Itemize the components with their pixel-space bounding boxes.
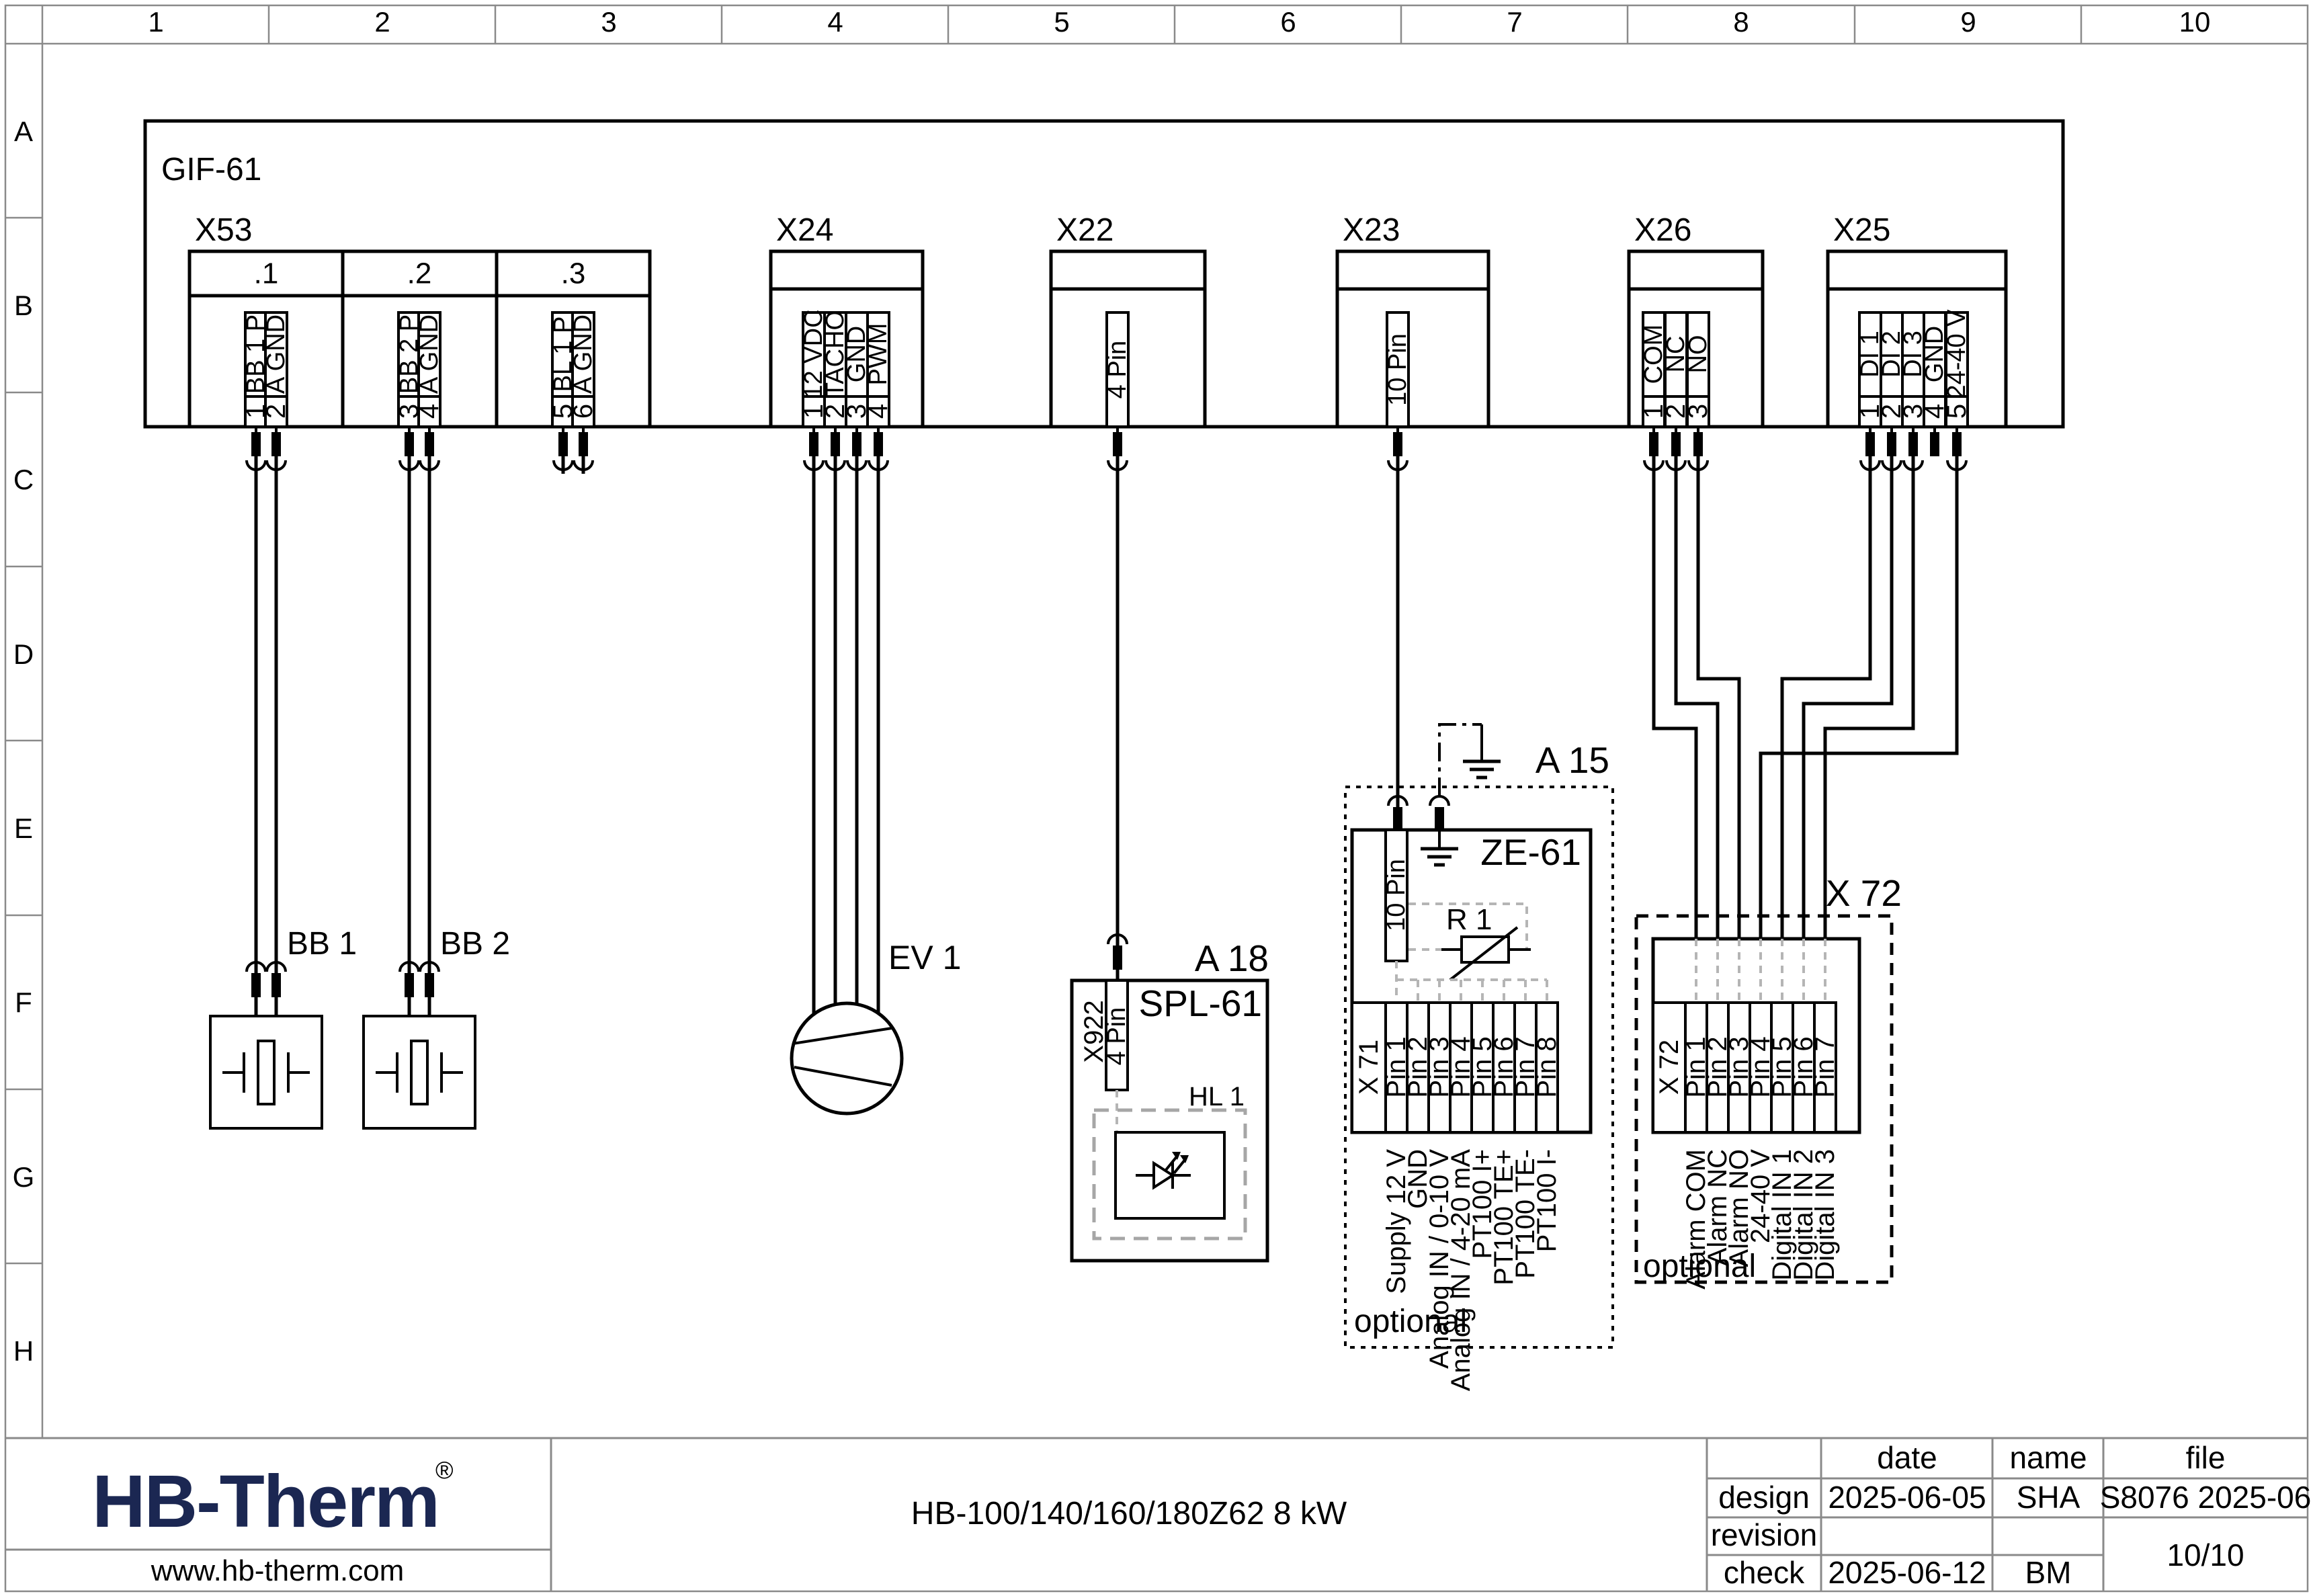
slot-label: 4 Pin [1103,1007,1131,1066]
connector-label: X26 [1634,212,1691,248]
pin-number: 4 [415,404,444,419]
col-header-date: date [1877,1440,1937,1475]
device-label: BB 2 [440,926,510,962]
brand-logo: HB-Therm ® [92,1456,453,1543]
strip-label: X 71 [1354,1040,1384,1095]
slot-label: 10 Pin [1384,333,1412,406]
grid-row-label: G [13,1161,35,1193]
grid-col-label: 10 [2179,6,2211,38]
col-header-name: name [2009,1440,2087,1475]
slot-label: 4 Pin [1103,341,1132,399]
fan-icon [792,1003,902,1114]
device-label: EV 1 [888,939,961,976]
grid-col-label: 8 [1733,6,1749,38]
design-date: 2025-06-05 [1828,1480,1986,1515]
grid-col-label: 6 [1280,6,1296,38]
grid-row-label: D [13,638,34,670]
grid-col-label: 3 [601,6,616,38]
registered-icon: ® [435,1456,454,1484]
title-block: HB-Therm ® www.hb-therm.com HB-100/140/1… [5,1438,2311,1591]
gnd-stub-pin [1930,432,1939,456]
wiring-diagram-canvas: 1 2 3 4 5 6 7 8 9 10 A B C D E F G H GIF… [0,0,2313,1596]
device-ref: X 72 [1826,872,1902,914]
connector-label: X23 [1343,212,1400,248]
connector-label: X25 [1833,212,1890,248]
row-label-check: check [1724,1555,1805,1590]
section-label: .3 [561,257,586,290]
design-name: SHA [2017,1480,2080,1515]
strip-pin: Pin 7 [1810,1036,1840,1097]
connector-label: X53 [195,212,252,248]
col-header-file: file [2186,1440,2226,1475]
brand-url: www.hb-therm.com [151,1554,405,1587]
connector-label: X22 [1056,212,1113,248]
grid-row-label: C [13,464,34,495]
check-date: 2025-06-12 [1828,1555,1986,1590]
hl1-label: HL 1 [1189,1082,1245,1111]
pin-number: 5 [1942,404,1972,419]
check-name: BM [2025,1555,2072,1590]
device-ref: A 18 [1195,937,1269,979]
grid-row-label: B [14,290,33,321]
pin-signal: A GND [415,314,444,394]
pin-number: 4 [864,404,893,419]
grid-col-label: 7 [1507,6,1522,38]
page-number: 10/10 [2167,1538,2244,1572]
grid-row-label: F [15,986,32,1018]
plug-icons-board [247,427,1966,470]
pin-signal: A GND [569,314,597,394]
section-label: .2 [407,257,432,290]
grid-row-label: A [14,116,33,147]
section-label: .1 [254,257,279,290]
pin-signal: PWM [864,323,892,386]
logo-text: HB-Therm [92,1460,439,1543]
optional-label: optional [1643,1249,1756,1284]
grid-col-label: 4 [827,6,843,38]
grid-row-label: E [14,812,33,844]
connector-label: X24 [776,212,833,248]
row-label-design: design [1718,1480,1810,1515]
pin-signal: NO [1684,335,1712,374]
device-ev1: EV 1 [792,939,961,1114]
grid-col-label: 1 [148,6,163,38]
schematic-sheet: 1 2 3 4 5 6 7 8 9 10 A B C D E F G H GIF… [0,0,2313,1596]
document-title: HB-100/140/160/180Z62 8 kW [911,1496,1347,1531]
grid-col-label: 9 [1960,6,1976,38]
pin-signal: A GND [262,314,290,394]
pin-number: 3 [1683,404,1713,419]
device-label: BB 1 [287,926,357,962]
device-a18-spl61: A 18 SPL-61 X922 4 Pin HL 1 [1072,937,1269,1261]
device-name: SPL-61 [1139,982,1262,1024]
grid-col-label: 2 [374,6,390,38]
board-label: GIF-61 [161,152,261,187]
row-label-revision: revision [1711,1517,1818,1552]
signal-label: PT100 I- [1532,1149,1562,1252]
device-ref: A 15 [1536,739,1609,781]
device-a15-ze61: A 15 ZE-61 10 Pin R 1 X 71 Pin 1 Pin 2 P… [1345,724,1613,1391]
earth-ground-icon [1463,761,1501,778]
device-bb2: BB 2 [364,926,510,1128]
pin-signal: 24-40 V [1943,309,1971,399]
device-bb1: BB 1 [210,926,357,1128]
signal-label: Digital IN 3 [1810,1149,1840,1281]
slot-label: 10 Pin [1382,859,1411,931]
wires [256,454,1957,1016]
device-name: ZE-61 [1480,831,1581,873]
strip-label: X 72 [1654,1040,1684,1095]
strip-pin: Pin 8 [1532,1036,1562,1097]
device-x72: X 72 X 72 Pin 1 Pin 2 Pin 3 Pin 4 Pin 5 … [1636,872,1902,1290]
grid-row-label: H [13,1335,34,1367]
r1-label: R 1 [1446,903,1492,936]
pin-number: 2 [261,404,291,419]
pin-number: 6 [569,404,598,419]
design-file: S8076 2025-06 [2100,1480,2312,1515]
optional-label: optional [1354,1304,1467,1339]
grid-col-label: 5 [1054,6,1069,38]
